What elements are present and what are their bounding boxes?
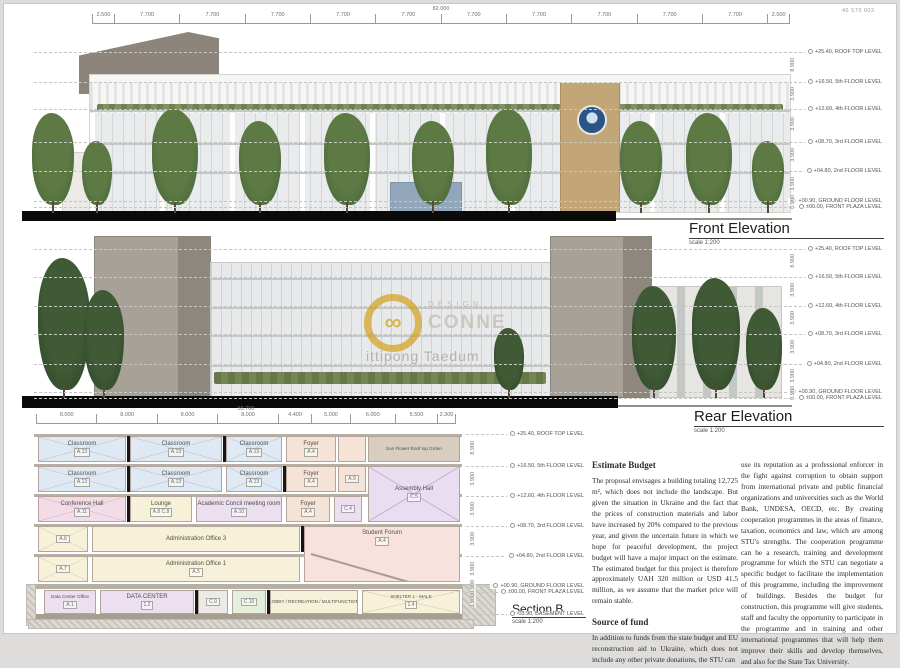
floor-height-dim: 3.900	[470, 472, 476, 486]
tree	[412, 121, 454, 213]
level-label: +08.70, 3rd FLOOR LEVEL	[507, 523, 584, 529]
tree	[620, 121, 662, 213]
front-elevation-dimension-row: 82.000 2.5007.7007.7007.7007.7007.7007.7…	[92, 14, 790, 24]
level-label: +04.80, 2nd FLOOR LEVEL	[506, 553, 584, 559]
sheet-number: 46 573 002	[842, 8, 875, 14]
dimension-label: 2.500	[93, 12, 114, 18]
room-a6: A.6	[38, 526, 88, 552]
watermark-brand-top: DESIGN	[428, 300, 483, 309]
watermark: ∞ DESIGN CONNE ittipong Taedum	[364, 294, 564, 366]
dimension-label: 2.500	[768, 12, 789, 18]
dimension-segment: 8.000	[217, 414, 277, 424]
watermark-brand: CONNE	[428, 312, 507, 334]
room-lobby-recreation: LOBBY / RECREATION / MULTIFUNCTION	[270, 590, 358, 614]
front-elevation-drawing	[24, 30, 794, 220]
level-line: +08.70, 3rd FLOOR LEVEL	[466, 526, 584, 527]
tree	[38, 258, 90, 398]
level-label: +08.70, 3rd FLOOR LEVEL	[805, 139, 882, 145]
level-line: +16.50, 5th FLOOR LEVEL	[466, 466, 584, 467]
room-data-center: DATA CENTER1.2	[100, 590, 194, 614]
floor-height-dim: 3.900	[470, 532, 476, 546]
dimension-label: 7.700	[246, 12, 310, 18]
tree	[82, 141, 112, 213]
wall-mark	[127, 496, 130, 522]
drawing-sheet: 46 573 002 82.000 2.5007.7007.7007.7007.…	[3, 3, 897, 634]
level-label: +25.40, ROOF TOP LEVEL	[805, 49, 882, 55]
section-title-block: Section B scale 1:200	[512, 602, 586, 625]
dimension-label: 8.000	[218, 412, 277, 418]
shaft	[338, 436, 366, 462]
room-classroom: ClassroomA.13	[226, 466, 282, 492]
dimension-segment: 7.700	[702, 14, 767, 24]
dimension-label: 8.000	[37, 412, 96, 418]
level-label: +00.90, GROUND FLOOR LEVEL	[788, 198, 882, 204]
rear-elevation-drawing: ∞ DESIGN CONNE ittipong Taedum	[24, 232, 794, 410]
room-classroom: ClassroomA.13	[38, 436, 126, 462]
dimension-label: 2.300	[438, 412, 455, 418]
floor-slab-line	[211, 278, 551, 280]
tree	[84, 290, 124, 398]
level-label: +16.50, 5th FLOOR LEVEL	[507, 463, 584, 469]
tree	[486, 109, 532, 213]
section-scale: scale 1:200	[512, 619, 586, 625]
estimate-budget-heading: Estimate Budget	[592, 460, 738, 470]
rear-elevation-scale: scale 1:200	[694, 428, 884, 434]
tree	[152, 109, 198, 213]
wall-mark	[301, 526, 304, 552]
room-a7: A.7	[38, 556, 88, 582]
dimension-label: 5.500	[396, 412, 437, 418]
level-line: +12.60, 4th FLOOR LEVEL	[466, 496, 584, 497]
dimension-segment: 7.700	[179, 14, 244, 24]
dimension-label: 7.700	[180, 12, 244, 18]
room-admin-office-1: Administration Office 1A.5	[92, 556, 300, 582]
section-dimension-row: 55.700 8.0008.0008.0008.0004.4005.0006.0…	[36, 414, 456, 424]
dimension-segment: 7.700	[375, 14, 440, 24]
room-shelter-male: SHELTER 1 - MALE1.4	[362, 590, 460, 614]
room-foyer: FoyerA.4	[286, 436, 336, 462]
floor-height-dim: 3.900	[470, 502, 476, 516]
tree	[686, 113, 732, 213]
room-foyer: FoyerA.4	[286, 496, 330, 522]
dimension-label: 8.000	[97, 412, 156, 418]
text-column-1: Estimate Budget The proposal envisages a…	[592, 460, 738, 666]
room-classroom: ClassroomA.13	[130, 466, 222, 492]
room-c9: C.9	[198, 590, 228, 614]
estimate-budget-paragraph: The proposal envisages a building totali…	[592, 476, 738, 607]
room-c10: C.10	[232, 590, 266, 614]
dimension-label: 7.700	[572, 12, 636, 18]
level-label: ±00.00, FRONT PLAZA LEVEL	[498, 589, 584, 595]
room-classroom: ClassroomA.13	[38, 466, 126, 492]
room-a9: A.9	[338, 466, 366, 492]
room-c4: C.4	[334, 496, 362, 522]
dimension-segment: 7.700	[114, 14, 179, 24]
dimension-label: 4.400	[279, 412, 312, 418]
tree	[632, 286, 676, 398]
level-label: +16.50, 5th FLOOR LEVEL	[805, 79, 882, 85]
room-classroom: ClassroomA.13	[130, 436, 222, 462]
room-roof-garden: Sun Flower Roof top Grden	[368, 436, 460, 462]
source-of-fund-paragraph: In addition to funds from the state budg…	[592, 633, 738, 666]
dimension-segment: 2.500	[767, 14, 790, 24]
ground-slab	[34, 584, 462, 589]
emblem-wall	[560, 83, 620, 212]
dimension-segment: 8.000	[36, 414, 96, 424]
dimension-segment: 6.000	[350, 414, 396, 424]
rear-elevation-title: Rear Elevation	[694, 408, 884, 427]
level-label: +12.60, 4th FLOOR LEVEL	[507, 493, 584, 499]
level-line: +04.80, 2nd FLOOR LEVEL	[466, 556, 584, 557]
wall-mark	[267, 590, 270, 614]
floor-height-dim: 8.900	[470, 441, 476, 455]
tree	[752, 141, 784, 213]
level-label: +25.40, ROOF TOP LEVEL	[805, 246, 882, 252]
tree	[746, 308, 782, 398]
wall-mark	[127, 436, 130, 462]
dimension-label: 8.000	[158, 412, 217, 418]
level-label: +12.60, 4th FLOOR LEVEL	[805, 303, 882, 309]
tree	[239, 121, 281, 213]
wall-mark	[223, 436, 226, 462]
room-foyer: FoyerA.4	[286, 466, 336, 492]
dimension-label: 7.700	[507, 12, 571, 18]
dimension-segment: 7.700	[506, 14, 571, 24]
room-assembly-hall: Assembly HallC.5	[368, 466, 460, 522]
room-conference-hall: Conference HallA.11	[38, 496, 126, 522]
soil-hatch	[28, 619, 474, 629]
level-label: +25.40, ROOF TOP LEVEL	[507, 431, 584, 437]
dimension-label: 7.700	[376, 12, 440, 18]
level-label: ±00.00, FRONT PLAZA LEVEL	[796, 395, 882, 401]
dimension-segment: 2.500	[92, 14, 114, 24]
dimension-segment: 8.000	[96, 414, 156, 424]
level-label: +04.80, 2nd FLOOR LEVEL	[804, 361, 882, 367]
rear-elevation-title-block: Rear Elevation scale 1:200	[694, 408, 884, 434]
tree	[692, 278, 740, 398]
level-label: +04.80, 2nd FLOOR LEVEL	[804, 168, 882, 174]
wall-mark	[283, 466, 286, 492]
room-student-forum: Student ForumA.4	[304, 526, 460, 582]
stair	[311, 553, 419, 582]
section-b-drawing: ClassroomA.13 ClassroomA.13 ClassroomA.1…	[34, 430, 466, 630]
watermark-logo-icon: ∞	[364, 294, 422, 352]
room-admin-office-3: Administration Office 3	[92, 526, 300, 552]
level-label: +12.60, 4th FLOOR LEVEL	[805, 106, 882, 112]
room-lounge: LoungeA.8 C.8	[130, 496, 192, 522]
dimension-segment: 7.700	[310, 14, 375, 24]
watermark-author: ittipong Taedum	[366, 348, 480, 364]
level-label: +00.90, GROUND FLOOR LEVEL	[788, 389, 882, 395]
room-classroom: ClassroomA.13	[226, 436, 282, 462]
level-line: +25.40, ROOF TOP LEVEL	[466, 434, 584, 435]
source-of-fund-heading: Source of fund	[592, 617, 738, 627]
dimension-segment: 7.700	[245, 14, 310, 24]
dimension-label: 7.700	[638, 12, 702, 18]
dimension-label: 5.000	[312, 412, 349, 418]
tree	[324, 113, 370, 213]
dimension-label: 6.000	[351, 412, 396, 418]
floor-height-dim: 3.900	[470, 562, 476, 576]
ground-line	[618, 405, 792, 407]
dimension-label: 7.700	[703, 12, 767, 18]
section-title: Section B	[512, 602, 586, 618]
level-label: +00.90, GROUND FLOOR LEVEL	[490, 583, 584, 589]
room-academic-council: Academic Concil meeting roomA.10	[196, 496, 282, 522]
wall-mark	[195, 590, 198, 614]
level-label: +08.70, 3rd FLOOR LEVEL	[805, 331, 882, 337]
tree	[32, 113, 74, 213]
dimension-segment: 4.400	[278, 414, 312, 424]
dimension-label: 7.700	[442, 12, 506, 18]
dimension-segment: 7.700	[441, 14, 506, 24]
dimension-segment: 7.700	[571, 14, 636, 24]
dimension-label: 7.700	[311, 12, 375, 18]
dimension-segment: 2.300	[437, 414, 456, 424]
level-label: +16.50, 5th FLOOR LEVEL	[805, 274, 882, 280]
dimension-segment: 5.500	[395, 414, 437, 424]
dimension-segment: 7.700	[637, 14, 702, 24]
dimension-label: 7.700	[115, 12, 179, 18]
university-emblem	[577, 105, 607, 135]
level-label: ±00.00, FRONT PLAZA LEVEL	[796, 204, 882, 210]
wall-mark	[127, 466, 130, 492]
dimension-segment: 8.000	[157, 414, 217, 424]
dimension-segment: 5.000	[311, 414, 349, 424]
room-data-center-office: Data Center OfficeA.1	[44, 590, 96, 614]
